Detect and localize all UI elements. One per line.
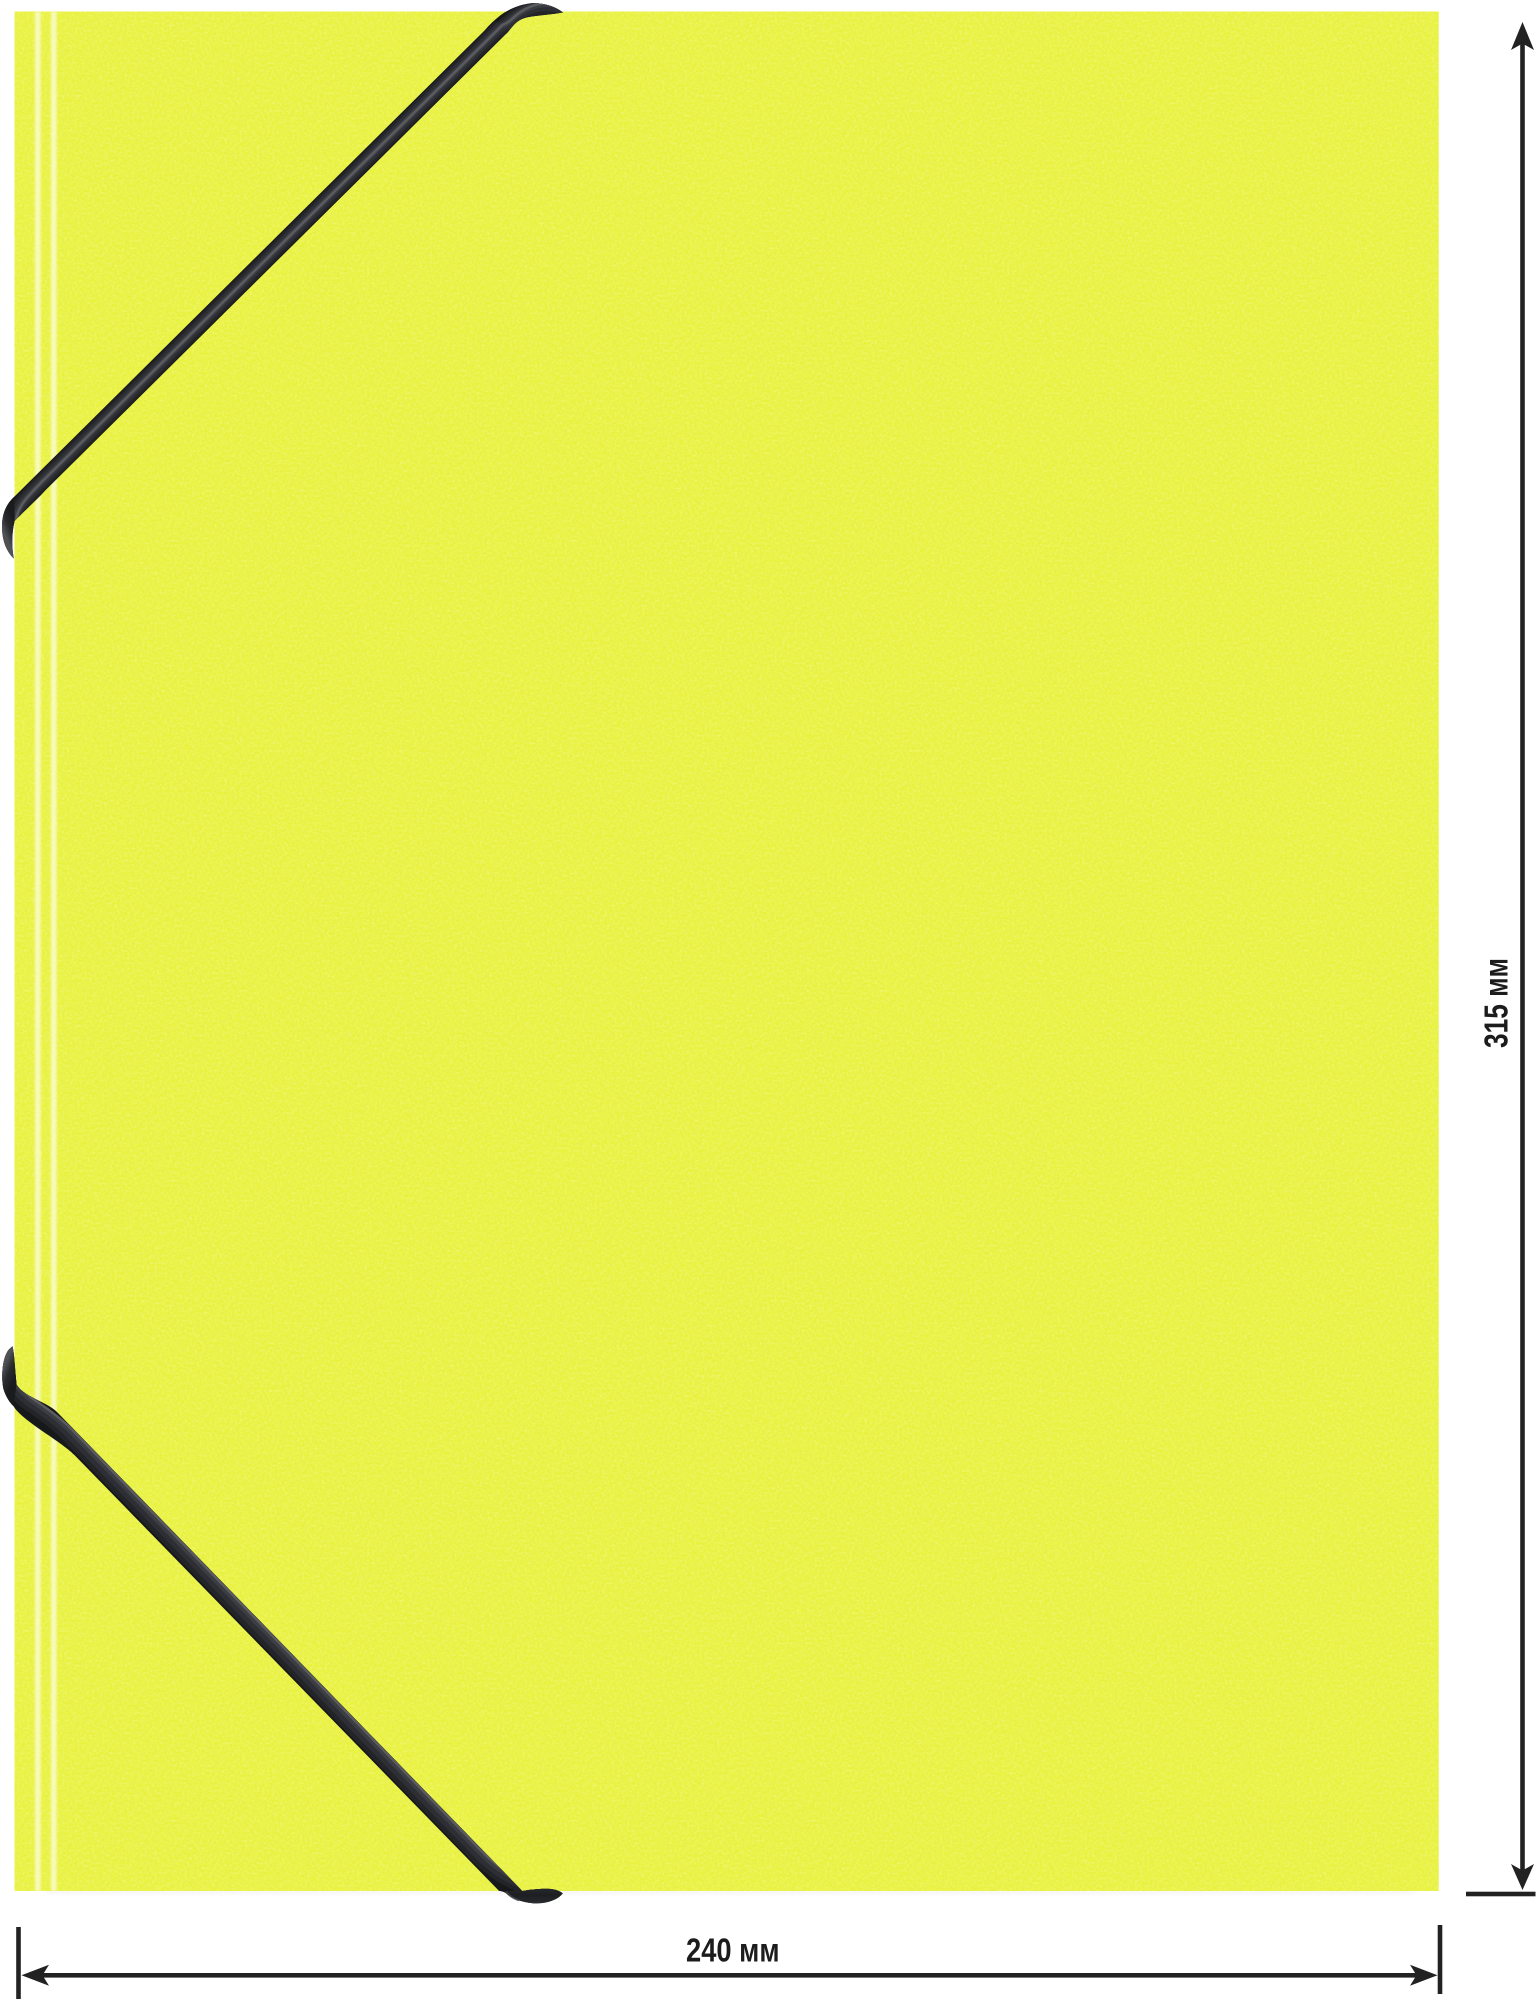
svg-text:315 мм: 315 мм [1477, 958, 1514, 1048]
svg-text:240 мм: 240 мм [686, 1931, 780, 1968]
